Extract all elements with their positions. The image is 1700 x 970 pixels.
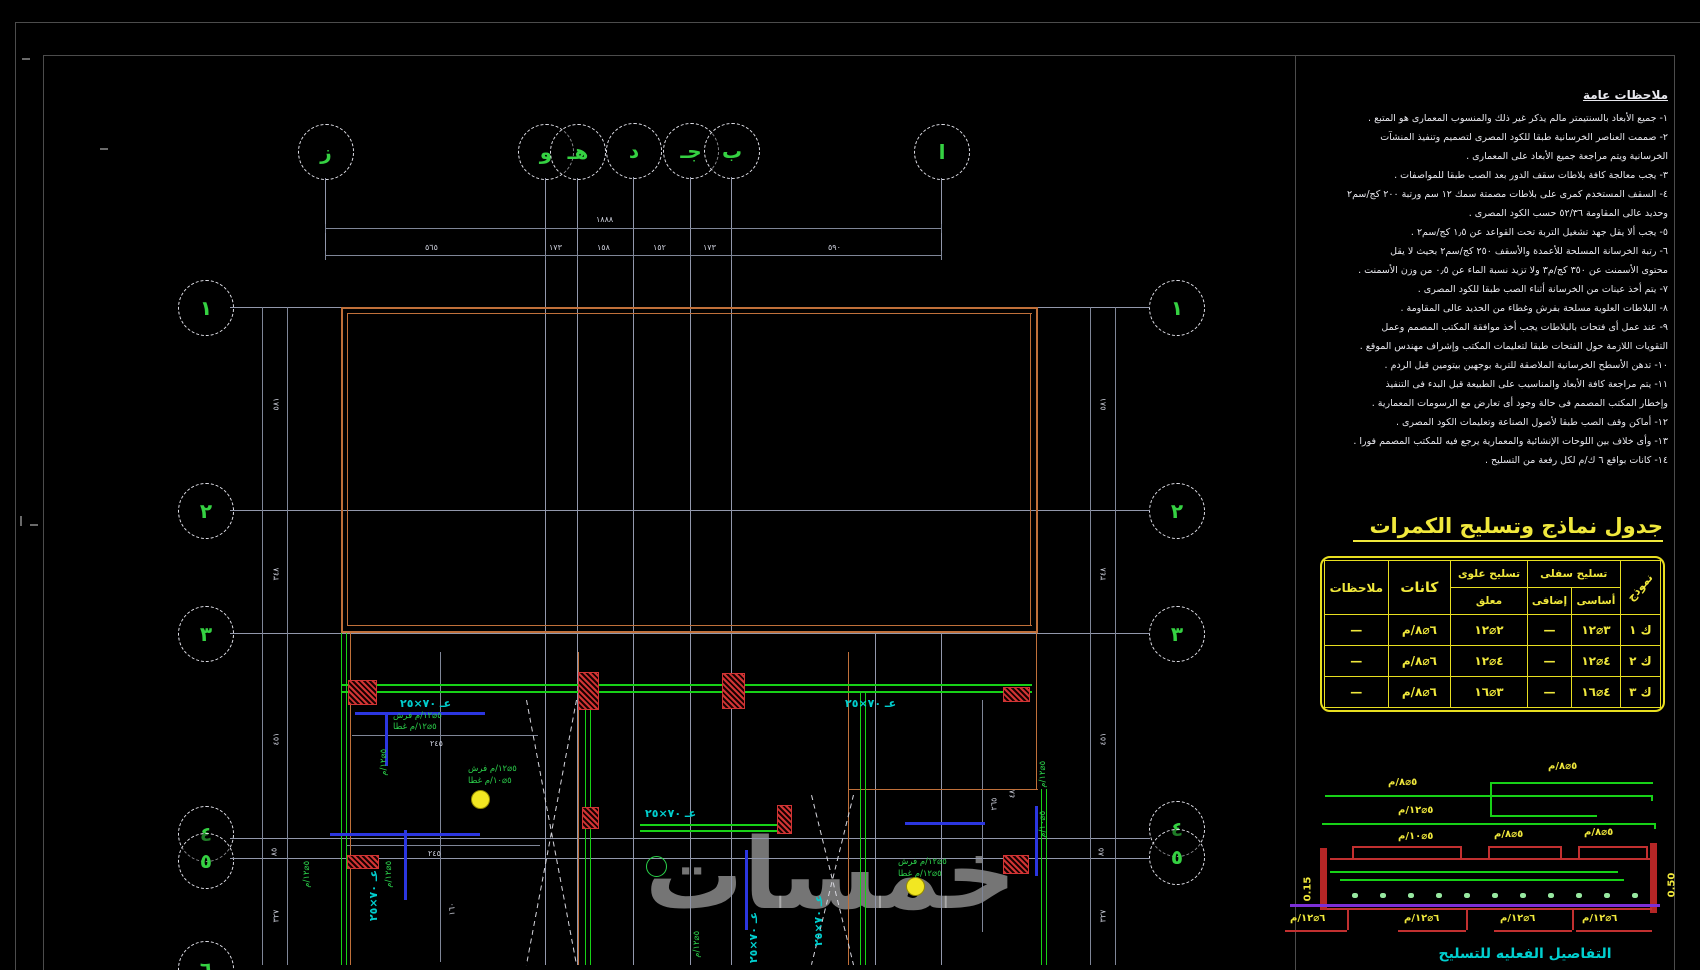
- drawing-line: [325, 224, 326, 233]
- rebar-note: ٥⌀١٢/م غطا: [393, 723, 437, 732]
- notes-line: ٢- صممت العناصر الخرسانية طبقا للكود الم…: [1352, 128, 1668, 147]
- beam-table-cell-main: ٤⌀١٦: [1572, 677, 1620, 708]
- drawing-line: [341, 307, 1038, 309]
- drawing-line: [325, 251, 326, 260]
- drawing-line: [262, 307, 263, 965]
- detail-label: ٥⌀٨/م: [1494, 830, 1523, 840]
- detail-label: ٦⌀١٢/م: [1500, 914, 1535, 924]
- drawing-line: [1466, 908, 1468, 930]
- drawing-line: [1090, 307, 1091, 965]
- detail-label: ٥⌀٨/م: [1548, 762, 1577, 772]
- drawing-line: [1115, 307, 1116, 965]
- drawing-line: [545, 178, 546, 965]
- notes-line: ٧- يتم أخذ عينات من الخرسانة أثناء الصب …: [1352, 280, 1668, 299]
- grid-bubble-d: د: [606, 123, 662, 179]
- dim-segment: ١٧٣: [703, 244, 716, 252]
- beam-table-wrapper: نموذج تسليح سفلى تسليح علوى كانات ملاحظا…: [1320, 556, 1665, 712]
- beam-table-cell-stirrups: ٦⌀٨/م: [1388, 615, 1451, 646]
- drawing-line: [1347, 908, 1349, 930]
- drawing-line: [347, 625, 1032, 626]
- dim-segment: ٥٦٥: [425, 244, 438, 252]
- beam-table-cell-top: ٢⌀١٢: [1451, 615, 1528, 646]
- dim-segment: ٤٥١: [1099, 733, 1107, 746]
- stirrup-dots: [1520, 893, 1526, 898]
- drawing-line: [731, 177, 732, 965]
- grid-bubble-b: ب: [704, 123, 760, 179]
- rebar-note: ٥⌀١٢/م غطا: [898, 870, 942, 879]
- notes-panel: ملاحظات عامة ١- جميع الأبعاد بالسنتيمتر …: [1352, 88, 1668, 470]
- drawing-line: [941, 178, 942, 255]
- drawing-line: [346, 633, 347, 965]
- drawing-line: [1576, 930, 1652, 932]
- beam-table-cell-top: ٤⌀١٢: [1451, 646, 1528, 677]
- drawing-rect: [100, 148, 108, 150]
- circle-marker: [646, 856, 667, 877]
- rebar-note: ٥⌀١٢/م: [1039, 761, 1048, 788]
- drawing-line: [982, 700, 983, 932]
- grid-bubble-h: هـ: [550, 124, 606, 180]
- drawing-line: [287, 307, 288, 965]
- stirrup-dots: [1632, 893, 1638, 898]
- beam-label: عـ ٧٠×٢٥: [645, 808, 696, 819]
- notes-line: ١٠- تدهن الأسطح الخرسانية الملاصقة للترب…: [1352, 356, 1668, 375]
- beam-table-cell-stirrups: ٦⌀٨/م: [1388, 646, 1451, 677]
- beam-table-cell-model: ك ٢: [1620, 646, 1660, 677]
- drawing-line: [633, 177, 634, 965]
- beam-table-cell-add: —: [1527, 615, 1571, 646]
- notes-line: ٥- يجب ألا يقل جهد تشغيل التربة تحت القو…: [1352, 223, 1668, 242]
- beam-table-cell-add: —: [1527, 646, 1571, 677]
- stirrup-dots: [1352, 893, 1358, 898]
- drawing-line: [352, 735, 538, 736]
- rebar-note: ٥⌀١٢/م: [385, 861, 394, 888]
- row-bubble-right-1: ١: [1149, 280, 1205, 336]
- rebar-note: ٥⌀١٢/م: [380, 749, 389, 776]
- notes-line: ١١- يتم مراجعة كافة الأبعاد والمناسيب عل…: [1352, 375, 1668, 394]
- row-bubble-left-5: ٥: [178, 833, 234, 889]
- beam-table-row: ك ١٣⌀١٢—٢⌀١٢٦⌀٨/م—: [1325, 615, 1661, 646]
- notes-line: ١- جميع الأبعاد بالسنتيمتر مالم يذكر غير…: [1352, 109, 1668, 128]
- drawing-line: [1488, 846, 1562, 848]
- beam-table-row: ك ٣٤⌀١٦—٣⌀١٦٦⌀٨/م—: [1325, 677, 1661, 708]
- beam-table-cell-remarks: —: [1325, 646, 1389, 677]
- drawing-line: [230, 838, 1150, 839]
- beam-label: عـ ٧٠×٢٥: [368, 870, 379, 921]
- notes-line: التقويات اللازمة حول الفتحات طبقا لتعليم…: [1352, 337, 1668, 356]
- drawing-line: [633, 251, 634, 260]
- column-hatch: [1003, 687, 1030, 702]
- header-bottom-rft: تسليح سفلى: [1527, 561, 1620, 588]
- beam-table-cell-add: —: [1527, 677, 1571, 708]
- beam-table-cell-model: ك ٣: [1620, 677, 1660, 708]
- dim-segment: ٣٢٧: [1099, 910, 1107, 923]
- row-bubble-left-1: ١: [178, 280, 234, 336]
- drawing-line: [1330, 858, 1652, 860]
- beam-label: عـ ٧٠×٢٥: [400, 698, 451, 709]
- drawing-line: [325, 228, 941, 229]
- rebar-note: ٥⌀١٠/م: [1039, 811, 1048, 838]
- beam-label: عـ ٧٠×٢٥: [813, 895, 824, 946]
- drawing-line: [860, 691, 861, 965]
- grid-bubble-z: ز: [298, 124, 354, 180]
- notes-lines: ١- جميع الأبعاد بالسنتيمتر مالم يذكر غير…: [1352, 109, 1668, 470]
- column-hatch: [722, 673, 745, 709]
- notes-line: ١٤- كانات بواقع ٦ ك/م لكل رفعة من التسلي…: [1352, 451, 1668, 470]
- stirrup-dots: [1464, 893, 1470, 898]
- drawing-line: [347, 313, 348, 625]
- drawing-line: [731, 251, 732, 260]
- beam-table-cell-main: ٣⌀١٢: [1572, 615, 1620, 646]
- beam-table-cell-main: ٤⌀١٢: [1572, 646, 1620, 677]
- notes-line: ٦- رتبة الخرسانة المسلحة للأعمدة والأسقف…: [1352, 242, 1668, 261]
- drawing-line: [1398, 930, 1466, 932]
- drawing-line: [325, 178, 326, 255]
- drawing-line: [1340, 879, 1624, 881]
- detail-label: ٥⌀١٠/م: [1398, 832, 1433, 842]
- detail-dim: 0.50: [1667, 873, 1677, 898]
- drawing-line: [1651, 795, 1653, 801]
- drawing-line: [875, 633, 876, 965]
- column-hatch: [348, 680, 377, 705]
- drawing-line: [347, 845, 540, 846]
- notes-title: ملاحظات عامة: [1352, 88, 1668, 102]
- notes-line: ١٣- وأى خلاف بين اللوحات الإنشائية والمع…: [1352, 432, 1668, 451]
- drawing-line: [341, 691, 1032, 693]
- dim-segment: ٣٤٨: [272, 568, 280, 581]
- notes-line: ٤- السقف المستخدم كمرى على بلاطات مصمتة …: [1352, 185, 1668, 204]
- dim-segment: ٢٦٥: [990, 798, 998, 811]
- beam-table-body: ك ١٣⌀١٢—٢⌀١٢٦⌀٨/م—ك ٢٤⌀١٢—٤⌀١٢٦⌀٨/م—ك ٣٤…: [1325, 615, 1661, 708]
- drawing-line: [1490, 815, 1597, 817]
- notes-line: ١٢- أماكن وقف الصب طبقا لأصول الصناعة وت…: [1352, 413, 1668, 432]
- dim-total: ١٨٨٨: [596, 216, 613, 224]
- beam-table-title: جدول نماذج وتسليح الكمرات: [1353, 514, 1663, 542]
- drawing-line: [1290, 904, 1660, 907]
- drawing-line: [640, 824, 780, 826]
- drawing-line: [1560, 846, 1562, 858]
- column-hatch: [1003, 855, 1029, 874]
- drawing-line: [1646, 846, 1648, 858]
- drawing-line: [230, 633, 1150, 634]
- drawing-rect: [22, 58, 30, 60]
- dim-segment: ١٥٨: [597, 244, 610, 252]
- stirrup-dots: [1548, 893, 1554, 898]
- drawing-rect: [1650, 843, 1657, 913]
- detail-dim: 0.15: [1303, 877, 1313, 902]
- row-bubble-right-5: ٥: [1149, 829, 1205, 885]
- notes-line: محتوى الأسمنت عن ٣٥٠ كج/م٣ ولا تزيد نسبة…: [1352, 261, 1668, 280]
- dim-segment: ٥٨١: [272, 398, 280, 411]
- dim-segment: ١٧٣: [549, 244, 562, 252]
- dim-segment: ٥٨١: [1099, 398, 1107, 411]
- drawing-line: [1490, 782, 1492, 817]
- drawing-line: [1322, 823, 1656, 825]
- detail-label: ٥⌀٨/م: [1584, 828, 1613, 838]
- panel-divider: [1295, 55, 1296, 970]
- drawing-line: [1460, 846, 1462, 858]
- beam-table-cell-top: ٣⌀١٦: [1451, 677, 1528, 708]
- dim-segment: ١٥٢: [653, 244, 666, 252]
- detail-label: ٥⌀٨/م: [1388, 778, 1417, 788]
- notes-line: ٣- يجب معالجة كافة بلاطات سقف الدور بعد …: [1352, 166, 1668, 185]
- column-hatch: [777, 805, 792, 834]
- notes-line: الخرسانية ويتم مراجعة جميع الأبعاد على ا…: [1352, 147, 1668, 166]
- detail-label: ٦⌀١٢/م: [1582, 914, 1617, 924]
- drawing-line: [1352, 846, 1462, 848]
- dim-segment: ٥٩٠: [828, 244, 841, 252]
- notes-line: وحديد عالى المقاومة ٥٢/٣٦ حسب الكود المص…: [1352, 204, 1668, 223]
- header-bottom-add: إضافى: [1527, 588, 1571, 615]
- drawing-line: [690, 177, 691, 965]
- drawing-line: [1572, 908, 1574, 930]
- beam-table-cell-model: ك ١: [1620, 615, 1660, 646]
- notes-line: وإخطار المكتب المصمم فى حالة وجود أى تعا…: [1352, 394, 1668, 413]
- drawing-line: [941, 224, 942, 233]
- dim-segment: ٤٨: [1008, 790, 1016, 799]
- drawing-line: [545, 251, 546, 260]
- drawing-line: [341, 307, 343, 633]
- beam-table-cell-remarks: —: [1325, 615, 1389, 646]
- dim-segment: ٤٥١: [272, 733, 280, 746]
- drawing-line: [1327, 908, 1652, 910]
- rebar-note: ٥⌀١٠/م غطا: [468, 777, 512, 786]
- column-hatch: [347, 855, 379, 869]
- drawing-line: [341, 633, 342, 965]
- drawing-line: [347, 313, 1032, 314]
- rebar-note: ٥⌀١٢/م فرش: [393, 712, 442, 721]
- detail-label: ٥⌀١٢/م: [1398, 806, 1433, 816]
- column-hatch: [578, 672, 599, 710]
- column-hatch: [582, 807, 599, 829]
- drawing-line: [341, 684, 1032, 686]
- drawing-line: [941, 633, 942, 965]
- drawing-line: [905, 822, 985, 825]
- row-bubble-right-2: ٢: [1149, 483, 1205, 539]
- grid-bubble-a: ا: [914, 124, 970, 180]
- drawing-rect: [30, 524, 38, 526]
- stirrup-dots: [1380, 893, 1386, 898]
- drawing-line: [1030, 313, 1031, 625]
- drawing-line: [1036, 633, 1037, 790]
- dim-segment: ٨٥: [270, 848, 278, 857]
- beam-table-cell-remarks: —: [1325, 677, 1389, 708]
- dim-segment: ٣٤٨: [1099, 568, 1107, 581]
- header-top-rft: تسليح علوى: [1451, 561, 1528, 588]
- drawing-line: [640, 830, 780, 832]
- drawing-line: [1490, 782, 1653, 784]
- stirrup-dots: [1408, 893, 1414, 898]
- stirrup-dots: [1576, 893, 1582, 898]
- drawing-line: [1494, 930, 1572, 932]
- drawing-line: [404, 830, 407, 900]
- header-bottom-main: أساسى: [1572, 588, 1620, 615]
- dim-segment: ٢٤٥: [428, 850, 441, 858]
- drawing-line: [577, 251, 578, 260]
- notes-line: ٨- البلاطات العلوية مسلحة بفرش وغطاء من …: [1352, 299, 1668, 318]
- dim-segment: ٨٥: [1097, 848, 1105, 857]
- drawing-line: [1036, 307, 1038, 633]
- drawing-line: [1654, 823, 1656, 829]
- stirrup-dots: [1492, 893, 1498, 898]
- drawing-rect: [1320, 848, 1327, 910]
- beam-label: عـ ٧٠×٢٥: [748, 912, 759, 963]
- dim-segment: ٢٤٥: [430, 740, 443, 748]
- drawing-line: [1330, 871, 1618, 873]
- drawing-rect: [20, 516, 22, 526]
- beam-table: نموذج تسليح سفلى تسليح علوى كانات ملاحظا…: [1324, 560, 1661, 708]
- drawing-line: [341, 631, 1038, 633]
- beam-table-cell-stirrups: ٦⌀٨/م: [1388, 677, 1451, 708]
- beam-label: عـ ٧٠×٢٥: [845, 698, 896, 709]
- rebar-note: ٥⌀١٢/م: [693, 931, 702, 958]
- beam-table-row: ك ٢٤⌀١٢—٤⌀١٢٦⌀٨/م—: [1325, 646, 1661, 677]
- stirrup-dots: [1604, 893, 1610, 898]
- row-bubble-right-3: ٣: [1149, 606, 1205, 662]
- rebar-note: ٥⌀١٢/م فرش: [468, 765, 517, 774]
- detail-label: ٦⌀١٢/م: [1404, 914, 1439, 924]
- dim-segment: ٣٢٧: [272, 910, 280, 923]
- header-stirrups: كانات: [1388, 561, 1451, 615]
- drawing-line: [865, 691, 866, 965]
- detail-label: ٦⌀١٢/م: [1290, 914, 1325, 924]
- dim-segment: ١٦٠: [448, 903, 456, 916]
- header-remarks: ملاحظات: [1325, 561, 1389, 615]
- row-bubble-left-2: ٢: [178, 483, 234, 539]
- stirrup-dots: [1436, 893, 1442, 898]
- rebar-note: ٥⌀١٢/م: [303, 861, 312, 888]
- drawing-line: [1325, 795, 1653, 797]
- level-marker: [906, 877, 925, 896]
- drawing-line: [690, 251, 691, 260]
- row-bubble-left-3: ٣: [178, 606, 234, 662]
- header-top-sub: معلق: [1451, 588, 1528, 615]
- header-model: نموذج: [1620, 561, 1660, 615]
- detail-caption: التفاصيل الفعليه للتسليح: [1410, 946, 1640, 962]
- notes-line: ٩- عند عمل أى فتحات بالبلاطات يجب أخذ مو…: [1352, 318, 1668, 337]
- drawing-line: [230, 510, 1150, 511]
- drawing-line: [1285, 930, 1347, 932]
- level-marker: [471, 790, 490, 809]
- drawing-line: [1578, 846, 1648, 848]
- cad-canvas: ملاحظات عامة ١- جميع الأبعاد بالسنتيمتر …: [0, 0, 1700, 970]
- drawing-line: [941, 251, 942, 260]
- rebar-note: ٥⌀١٢/م فرش: [898, 858, 947, 867]
